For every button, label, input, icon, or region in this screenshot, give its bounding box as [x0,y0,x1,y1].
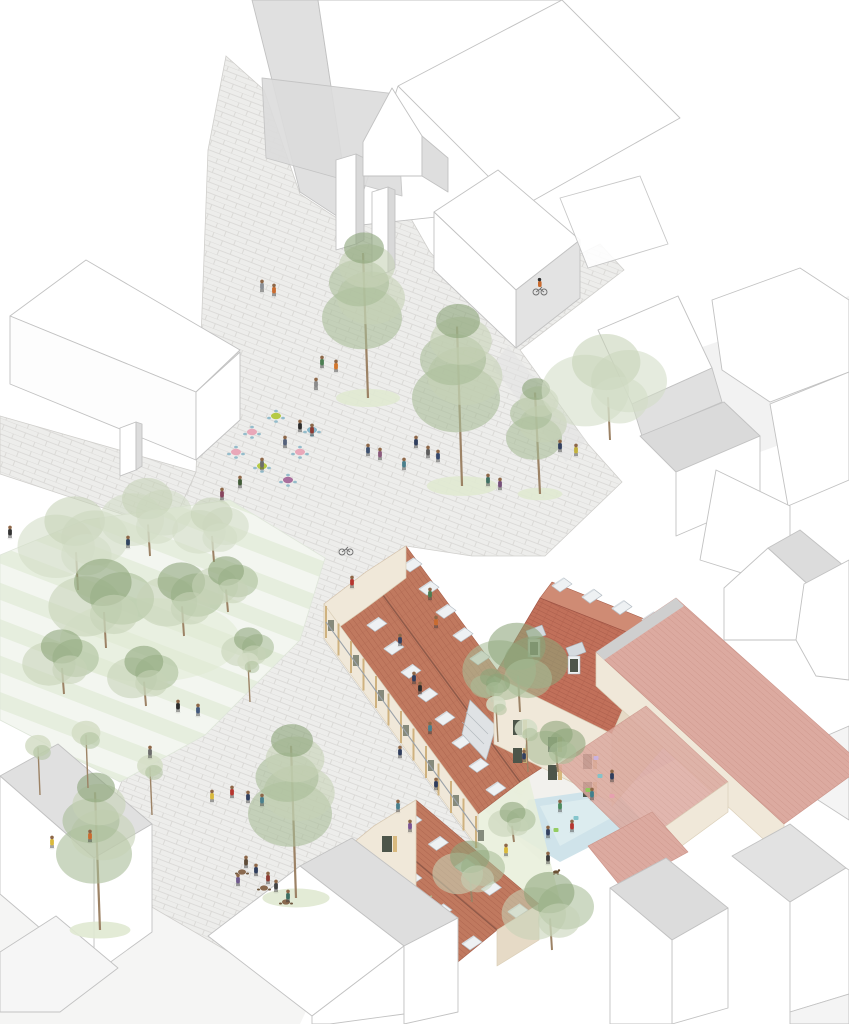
chimney [120,422,136,476]
site-illustration [0,0,849,1024]
play-equipment [610,794,615,798]
gallery-opening [478,830,484,841]
play-equipment [598,774,603,778]
scene-canvas [0,0,849,1024]
play-equipment [594,756,599,760]
play-equipment [574,816,579,820]
play-equipment [586,788,591,792]
play-equipment [554,828,559,832]
